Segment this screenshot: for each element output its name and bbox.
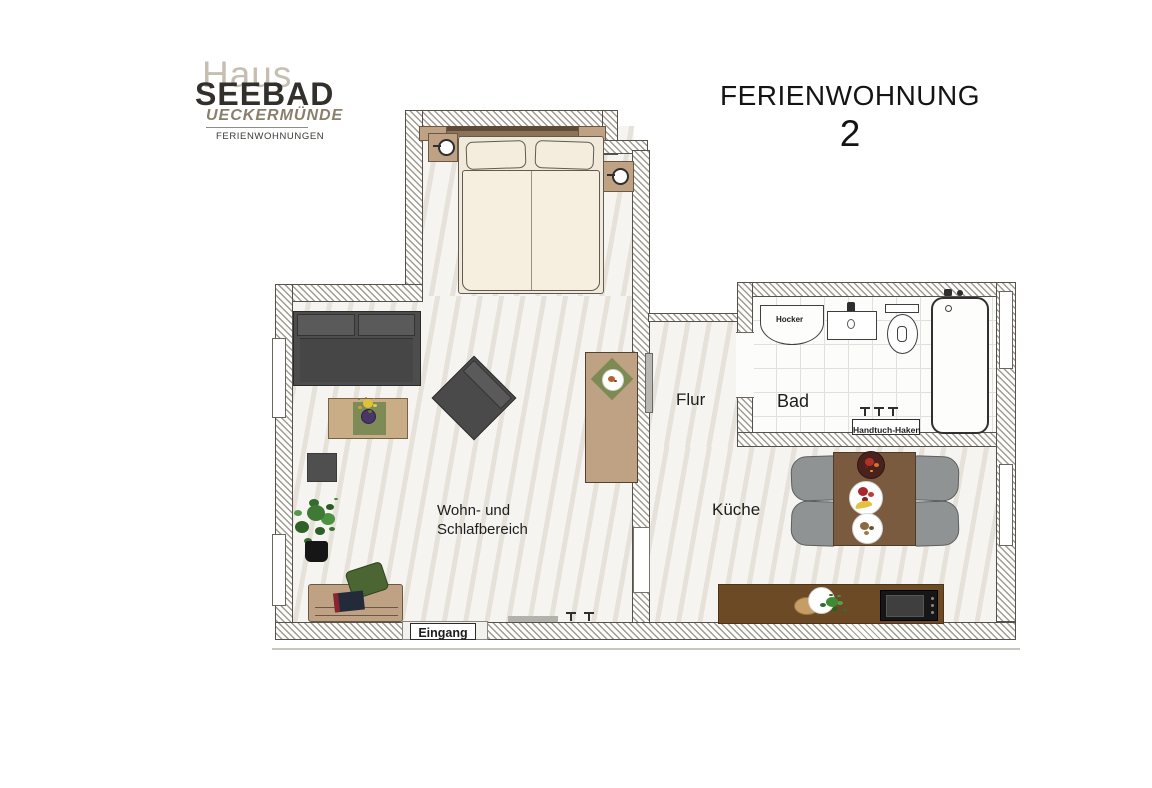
living-room-label-line2: Schlafbereich bbox=[437, 520, 528, 539]
door-leaf-living-hall bbox=[645, 353, 653, 413]
brand-logo: Haus SEEBAD UECKERMÜNDE FERIENWOHNUNGEN bbox=[190, 50, 370, 155]
exterior-baseline bbox=[272, 648, 1020, 650]
shower-tub bbox=[931, 297, 989, 434]
cooktop-screen bbox=[886, 595, 924, 617]
bath-label: Bad bbox=[777, 391, 809, 411]
wall-hall-top bbox=[648, 313, 739, 322]
towel-hook-icon bbox=[888, 407, 898, 416]
sofa-back-cushion bbox=[297, 314, 355, 336]
wall-bottom-outer bbox=[275, 622, 1016, 640]
dining-chair bbox=[911, 455, 960, 502]
food-on-plate bbox=[860, 522, 869, 530]
cooktop-buttons bbox=[931, 597, 934, 600]
cooktop-appliance bbox=[880, 590, 938, 621]
sofa-seat bbox=[300, 338, 413, 382]
food-plate bbox=[852, 513, 883, 544]
book-on-bench bbox=[333, 590, 365, 612]
decor-plate bbox=[602, 369, 624, 391]
entrance-doormat bbox=[508, 616, 558, 622]
entrance-label-box: Eingang bbox=[410, 623, 476, 640]
towel-hooks-label: Handtuch-Haken bbox=[853, 425, 921, 435]
decor-food bbox=[608, 376, 615, 382]
logo-subtitle-text: FERIENWOHNUNGEN bbox=[216, 131, 324, 142]
lamp-icon bbox=[438, 139, 455, 156]
window-living-left-lower bbox=[272, 534, 286, 606]
window-bath-right bbox=[999, 291, 1013, 369]
kitchen-label: Küche bbox=[712, 500, 760, 520]
flower-vase bbox=[361, 409, 376, 424]
plant-pot bbox=[305, 541, 328, 562]
hall-floor bbox=[648, 322, 739, 449]
coat-hook-icon bbox=[566, 612, 576, 621]
fruit-plate bbox=[849, 481, 883, 515]
bath-sink bbox=[827, 311, 877, 340]
sink-drain bbox=[847, 319, 855, 329]
side-stool bbox=[307, 453, 337, 482]
logo-divider bbox=[206, 127, 308, 128]
bed-pillow-right bbox=[535, 140, 595, 170]
sofa bbox=[293, 311, 421, 386]
logo-ueckermuende-text: UECKERMÜNDE bbox=[206, 107, 343, 125]
toilet-bowl bbox=[887, 314, 918, 354]
window-kitchen-right bbox=[999, 464, 1013, 546]
hall-label: Flur bbox=[676, 390, 705, 410]
living-room-label-line1: Wohn- und bbox=[437, 501, 528, 520]
sofa-back-cushion bbox=[358, 314, 415, 336]
door-opening-bath bbox=[736, 332, 754, 398]
plan-title-number: 2 bbox=[718, 113, 982, 155]
dining-chair bbox=[790, 500, 839, 547]
bed-duvet bbox=[462, 170, 600, 291]
basil-plant bbox=[826, 597, 838, 607]
living-room-label: Wohn- und Schlafbereich bbox=[437, 501, 528, 539]
plan-title: FERIENWOHNUNG 2 bbox=[718, 80, 982, 155]
towel-hook-icon bbox=[874, 407, 884, 416]
bed-pillow-left bbox=[466, 140, 527, 170]
flower-bouquet bbox=[363, 399, 373, 408]
banana bbox=[854, 499, 872, 509]
shower-drain bbox=[945, 305, 952, 312]
bench-drawer-line bbox=[315, 615, 398, 616]
wall-living-top bbox=[275, 284, 423, 302]
door-leaf-living-kitchen bbox=[633, 527, 650, 593]
floorplan-canvas: Haus SEEBAD UECKERMÜNDE FERIENWOHNUNGEN … bbox=[0, 0, 1152, 788]
potted-plant-foliage bbox=[307, 505, 325, 521]
apples bbox=[858, 487, 868, 496]
fruit-in-bowl bbox=[865, 458, 874, 466]
duvet-center-seam bbox=[531, 171, 532, 290]
plan-title-text: FERIENWOHNUNG bbox=[718, 80, 982, 112]
bath-stool-label: Hocker bbox=[776, 315, 803, 324]
entrance-label: Eingang bbox=[418, 626, 467, 640]
coat-hook-icon bbox=[584, 612, 594, 621]
toilet-tank bbox=[885, 304, 919, 313]
toilet-inner bbox=[897, 326, 907, 342]
shower-faucet-icon bbox=[957, 290, 963, 296]
window-living-left-upper bbox=[272, 338, 286, 418]
dining-chair bbox=[911, 500, 960, 547]
towel-hooks-label-box: Handtuch-Haken bbox=[852, 419, 920, 435]
fruit-bowl bbox=[857, 451, 885, 479]
shower-faucet-icon bbox=[944, 289, 952, 296]
lamp-icon bbox=[612, 168, 629, 185]
towel-hook-icon bbox=[860, 407, 870, 416]
dining-chair bbox=[790, 455, 839, 502]
